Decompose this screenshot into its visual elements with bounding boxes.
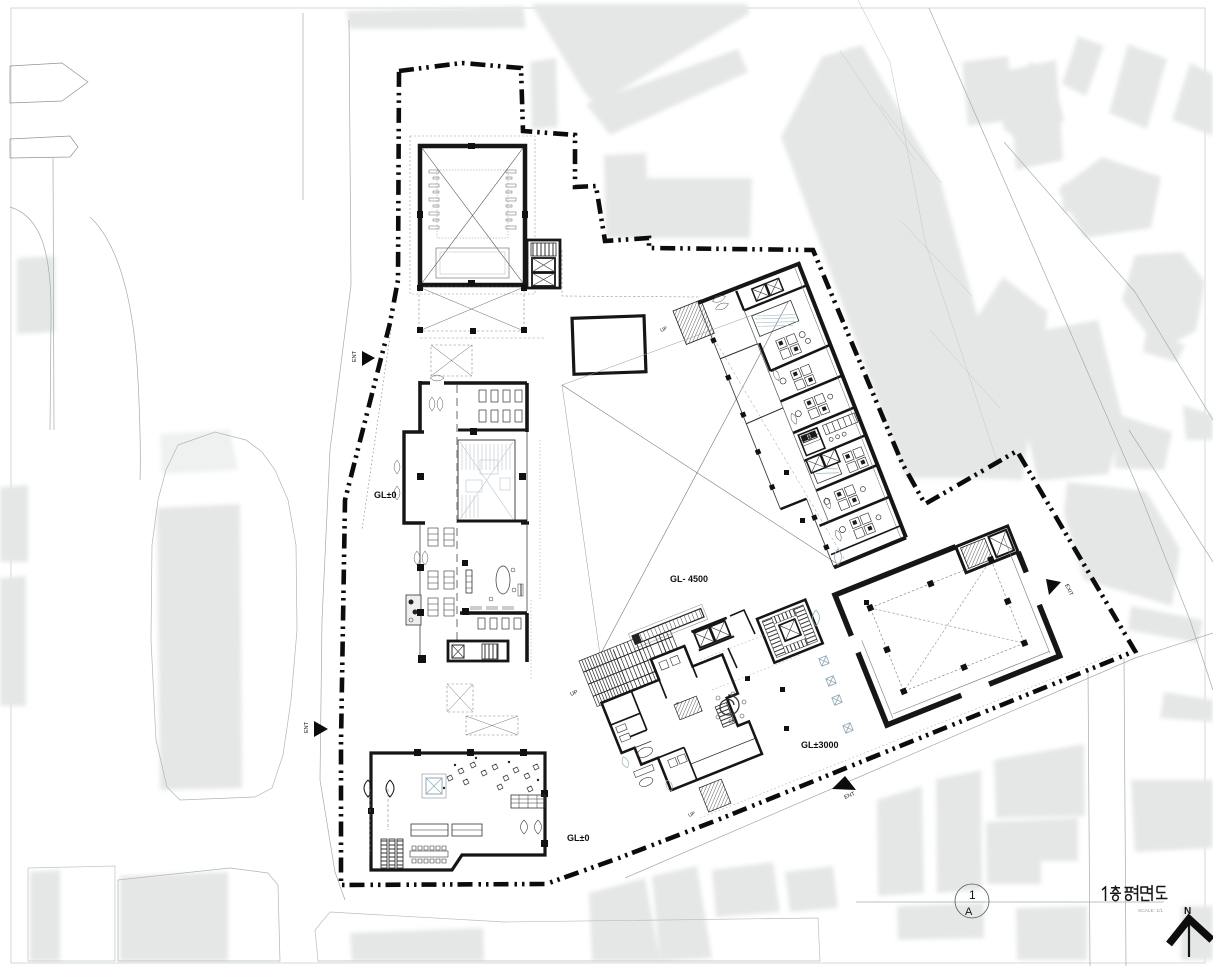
svg-text:GL- 4500: GL- 4500	[670, 574, 708, 584]
svg-text:GL±0: GL±0	[567, 833, 589, 843]
svg-text:ENT: ENT	[304, 721, 310, 733]
svg-text:GL±0: GL±0	[374, 490, 396, 500]
svg-text:GL±3000: GL±3000	[801, 740, 838, 750]
svg-text:A: A	[965, 906, 973, 918]
svg-text:ENT: ENT	[352, 350, 358, 362]
svg-text:SCALE: 1/1: SCALE: 1/1	[1138, 908, 1163, 914]
svg-text:1: 1	[969, 888, 976, 902]
